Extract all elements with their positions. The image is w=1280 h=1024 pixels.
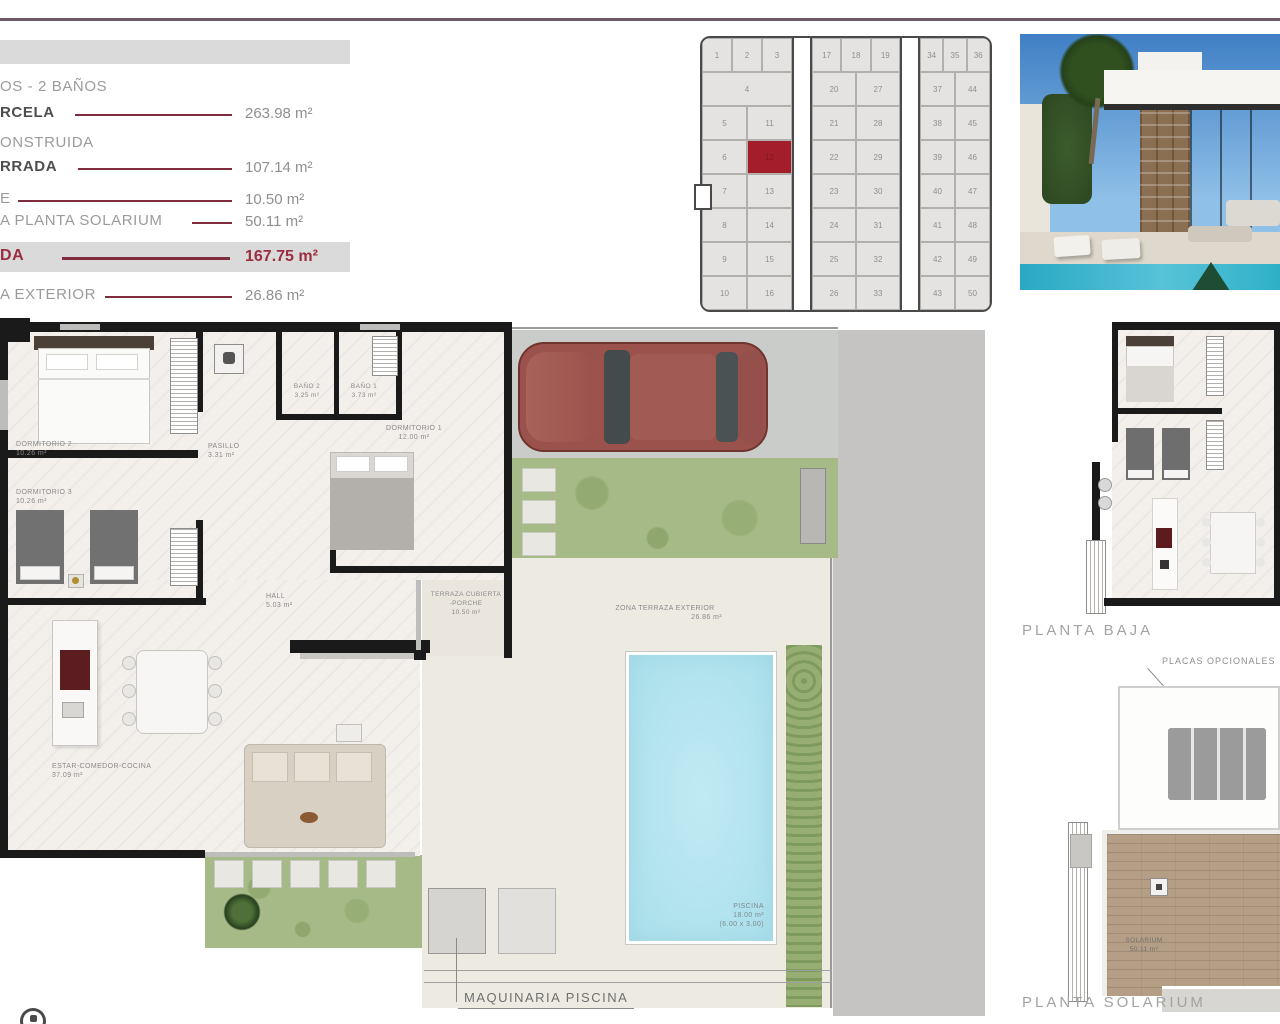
mini-chair: [1256, 518, 1265, 527]
lot-44: 44: [955, 72, 990, 106]
room-area: 18.00 m²: [660, 911, 764, 920]
lot-30: 30: [856, 174, 900, 208]
street-top-line: [510, 327, 838, 329]
info-value: 50.11 m²: [245, 213, 303, 230]
lot-47: 47: [955, 174, 990, 208]
lot-16: 16: [747, 276, 792, 310]
wall: [276, 330, 282, 414]
chair: [208, 684, 222, 698]
car-hood: [526, 352, 596, 442]
room-area: 37.09 m²: [52, 771, 151, 780]
lot-25: 25: [812, 242, 856, 276]
info-header: OS - 2 BAÑOS: [0, 78, 107, 95]
leader-line: [75, 114, 232, 116]
lot-5: 5: [702, 106, 747, 140]
info-label: A PLANTA SOLARIUM: [0, 212, 162, 229]
window: [60, 324, 100, 330]
pillow: [20, 566, 60, 580]
photo-table-set: [1188, 226, 1252, 242]
mini-bed: [1126, 336, 1174, 346]
info-value: 167.75 m²: [245, 248, 318, 266]
placas-label: PLACAS OPCIONALES: [1162, 656, 1276, 666]
stepping-stone: [290, 860, 320, 888]
room-name: TERRAZA CUBIERTA: [424, 590, 508, 599]
photo-pool: [1020, 264, 1280, 290]
lot-36: 36: [967, 38, 990, 72]
site-grid: 1234511612713814915101617181920272128222…: [700, 36, 992, 312]
room-name: PISCINA: [660, 902, 764, 911]
top-rule: [0, 18, 1280, 21]
sofa-cushion: [336, 752, 372, 782]
lot-43: 43: [920, 276, 955, 310]
lot-11: 11: [747, 106, 792, 140]
room-label-zona-terraza: ZONA TERRAZA EXTERIOR 26.86 m²: [600, 604, 730, 622]
info-value: 107.14 m²: [245, 159, 313, 176]
stepping-stone: [522, 468, 556, 492]
pillow: [46, 354, 88, 370]
room-label-pasillo: PASILLO 3.31 m²: [208, 442, 239, 460]
lot-1: 1: [702, 38, 732, 72]
leader-line: [18, 200, 232, 202]
lot-8: 8: [702, 208, 747, 242]
info-row-exterior: A EXTERIOR 26.86 m²: [0, 286, 350, 306]
wardrobe: [170, 528, 198, 586]
photo-sofa: [1226, 200, 1280, 226]
mini-pillow: [1164, 470, 1188, 478]
stone-pillar: [1140, 110, 1190, 234]
lot-2: 2: [732, 38, 762, 72]
solarium-vent-core: [1156, 884, 1162, 890]
wall: [330, 566, 506, 573]
room-name: DORMITORIO 2: [16, 440, 72, 449]
mini-blanket: [1126, 366, 1174, 402]
solarium-deck: [1102, 830, 1280, 996]
washer-drum: [223, 352, 235, 364]
info-row-parcela: RCELA 263.98 m²: [0, 104, 350, 124]
wall: [0, 850, 205, 858]
wall: [276, 414, 402, 420]
mini-pillow: [1128, 470, 1152, 478]
stepping-stone: [522, 532, 556, 556]
lot-42: 42: [920, 242, 955, 276]
chair: [208, 656, 222, 670]
boundary-line-right: [830, 558, 832, 1008]
pillow: [336, 456, 370, 472]
lot-3: 3: [762, 38, 792, 72]
hedge-strip: [786, 645, 822, 1007]
room-area: 50.11 m²: [1112, 945, 1176, 954]
villa-roof: [1104, 70, 1280, 104]
lot-22: 22: [812, 140, 856, 174]
room-label-porche: TERRAZA CUBIERTA -PORCHE 10.50 m²: [424, 590, 508, 617]
lot-18: 18: [841, 38, 870, 72]
mini-sink: [1160, 560, 1169, 569]
car: [518, 342, 768, 452]
sofa-cushion: [294, 752, 330, 782]
room-name: DORMITORIO 1: [378, 424, 450, 433]
leader-line: [105, 296, 232, 298]
wall-tv: [290, 640, 430, 653]
lot-27: 27: [856, 72, 900, 106]
wall: [1112, 322, 1280, 330]
chair: [122, 684, 136, 698]
lot-40: 40: [920, 174, 955, 208]
car-windshield: [604, 350, 630, 444]
wall: [1104, 598, 1280, 606]
lounger-icon: [1053, 235, 1090, 257]
site-road: [900, 38, 920, 310]
info-row-porche: E 10.50 m²: [0, 190, 350, 210]
room-label-piscina: PISCINA 18.00 m² (6.00 x 3.00): [660, 902, 764, 929]
solar-panels: [1168, 728, 1266, 800]
lot-13: 13: [747, 174, 792, 208]
mini-boiler: [1098, 478, 1112, 492]
info-top-bar: [0, 40, 350, 64]
lot-12: 12: [747, 140, 792, 174]
lot-35: 35: [943, 38, 966, 72]
lot-45: 45: [955, 106, 990, 140]
stepping-stone: [328, 860, 358, 888]
lot-46: 46: [955, 140, 990, 174]
terrace-bottom-line: [424, 970, 832, 971]
info-caption-construida: ONSTRUIDA: [0, 134, 94, 151]
room-label-estar: ESTAR-COMEDOR-COCINA 37.09 m²: [52, 762, 151, 780]
lot-49: 49: [955, 242, 990, 276]
logo-glyph: [30, 1015, 37, 1022]
lot-37: 37: [920, 72, 955, 106]
mini-stairs: [1086, 540, 1106, 614]
stepping-stone: [366, 860, 396, 888]
info-label: RCELA: [0, 104, 55, 121]
blanket: [330, 478, 414, 550]
coffee-table: [336, 724, 362, 742]
mini-chair: [1202, 518, 1211, 527]
info-panel: OS - 2 BAÑOS RCELA 263.98 m² ONSTRUIDA R…: [0, 30, 360, 310]
garden-strip-top: [510, 458, 838, 558]
maquinaria-leader: [456, 938, 457, 1002]
lot-41: 41: [920, 208, 955, 242]
car-rear-glass: [716, 352, 738, 442]
mini-chair: [1202, 538, 1211, 547]
lot-34: 34: [920, 38, 943, 72]
window: [360, 324, 400, 330]
terrace-bottom-line: [424, 982, 832, 983]
room-area: 26.86 m²: [600, 613, 730, 622]
mini-table: [1210, 512, 1256, 574]
lot-20: 20: [812, 72, 856, 106]
leader-line: [192, 222, 232, 224]
car-roof: [630, 354, 716, 440]
room-area: 10.50 m²: [424, 608, 508, 617]
lamp: [72, 577, 79, 584]
pool: [626, 652, 776, 944]
porch-door: [416, 580, 421, 650]
room-area: 3.31 m²: [208, 451, 239, 460]
lot-10: 10: [702, 276, 747, 310]
planta-solarium-label: PLANTA SOLARIUM: [1022, 994, 1206, 1011]
tv-shelf: [300, 653, 420, 659]
lot-15: 15: [747, 242, 792, 276]
lot-29: 29: [856, 140, 900, 174]
mini-wardrobe: [1206, 420, 1224, 470]
room-area: 12.00 m²: [378, 433, 450, 442]
window: [0, 380, 8, 430]
dining-table: [136, 650, 208, 734]
lot-33: 33: [856, 276, 900, 310]
room-label-hall: HALL 5.03 m²: [266, 592, 293, 610]
lounger-icon: [1102, 238, 1141, 260]
maquinaria-label: MAQUINARIA PISCINA: [458, 990, 634, 1009]
solarium-area-label: SOLARIUM 50.11 m²: [1112, 936, 1176, 954]
chair: [208, 712, 222, 726]
dog: [300, 812, 318, 823]
wall: [1112, 408, 1222, 414]
blanket-line: [38, 378, 150, 380]
info-row-solarium: A PLANTA SOLARIUM 50.11 m²: [0, 212, 350, 232]
lot-14: 14: [747, 208, 792, 242]
wall: [8, 598, 206, 605]
chair: [122, 712, 136, 726]
garden-gate: [800, 468, 826, 544]
info-label: DA: [0, 247, 24, 265]
room-area: 10.26 m²: [16, 497, 72, 506]
street-right: [833, 330, 985, 1016]
room-name: HALL: [266, 592, 293, 601]
pillow: [94, 566, 134, 580]
lot-38: 38: [920, 106, 955, 140]
stepping-stone: [522, 500, 556, 524]
lot-4: 4: [702, 72, 792, 106]
mini-chair: [1256, 538, 1265, 547]
lot-24: 24: [812, 208, 856, 242]
mini-planta-baja: [1062, 322, 1280, 614]
wall: [1274, 322, 1280, 606]
room-name: BAÑO 1: [340, 382, 388, 391]
planta-baja-label: PLANTA BAJA: [1022, 622, 1153, 639]
sofa-cushion: [252, 752, 288, 782]
mini-chair: [1256, 558, 1265, 567]
villa-roof-top-box: [1138, 52, 1202, 72]
lot-17: 17: [812, 38, 841, 72]
room-label-dormitorio1: DORMITORIO 1 12.00 m²: [378, 424, 450, 442]
lot-28: 28: [856, 106, 900, 140]
info-label: E: [0, 190, 11, 207]
garden-palm-icon: [222, 892, 262, 932]
solarium-landing: [1070, 834, 1092, 868]
info-value: 26.86 m²: [245, 287, 304, 304]
wall: [1112, 322, 1118, 442]
room-label-bano1: BAÑO 1 3.73 m²: [340, 382, 388, 400]
room-label-dormitorio2: DORMITORIO 2 10.26 m²: [16, 440, 72, 458]
stepping-stone: [214, 860, 244, 888]
room-name: ESTAR-COMEDOR-COCINA: [52, 762, 151, 771]
room-area: 10.26 m²: [16, 449, 72, 458]
wall: [334, 330, 339, 414]
mini-boiler: [1098, 496, 1112, 510]
mini-cooktop: [1156, 528, 1172, 548]
closet: [372, 336, 398, 376]
lot-32: 32: [856, 242, 900, 276]
room-dims: (6.00 x 3.00): [660, 920, 764, 929]
plan-sheet: OS - 2 BAÑOS RCELA 263.98 m² ONSTRUIDA R…: [0, 0, 1280, 1024]
room-name: -PORCHE: [424, 599, 508, 608]
chair: [122, 656, 136, 670]
info-value: 263.98 m²: [245, 105, 313, 122]
room-name: DORMITORIO 3: [16, 488, 72, 497]
villa-photo: [1020, 34, 1280, 290]
room-label-dormitorio3: DORMITORIO 3 10.26 m²: [16, 488, 72, 506]
pillow: [374, 456, 408, 472]
room-area: 3.25 m²: [284, 391, 330, 400]
lot-9: 9: [702, 242, 747, 276]
leader-line: [78, 168, 232, 170]
room-area: 3.73 m²: [340, 391, 388, 400]
pillow: [96, 354, 138, 370]
lot-48: 48: [955, 208, 990, 242]
stepping-stone: [252, 860, 282, 888]
maquinaria-box: [498, 888, 556, 954]
wardrobe: [170, 338, 198, 434]
lot-19: 19: [871, 38, 900, 72]
info-row-cerrada: RRADA 107.14 m²: [0, 158, 350, 178]
info-label: A EXTERIOR: [0, 286, 96, 303]
lot-39: 39: [920, 140, 955, 174]
room-area: 5.03 m²: [266, 601, 293, 610]
maquinaria-box: [428, 888, 486, 954]
lot-31: 31: [856, 208, 900, 242]
car-trunk: [738, 350, 764, 444]
site-road: [792, 38, 812, 310]
room-name: ZONA TERRAZA EXTERIOR: [600, 604, 730, 613]
lot-23: 23: [812, 174, 856, 208]
info-row-total: DA 167.75 m²: [0, 247, 350, 267]
info-label: RRADA: [0, 158, 57, 175]
leader-line: [62, 257, 230, 260]
mini-chair: [1202, 558, 1211, 567]
lot-50: 50: [955, 276, 990, 310]
mini-wardrobe: [1206, 336, 1224, 396]
sink: [62, 702, 84, 718]
room-label-bano2: BAÑO 2 3.25 m²: [284, 382, 330, 400]
room-name: BAÑO 2: [284, 382, 330, 391]
sliding-door: [205, 852, 415, 857]
site-grid-notch: [694, 184, 712, 210]
info-value: 10.50 m²: [245, 191, 304, 208]
lot-6: 6: [702, 140, 747, 174]
cooktop: [60, 650, 90, 690]
lot-26: 26: [812, 276, 856, 310]
room-name: SOLARIUM: [1112, 936, 1176, 945]
lot-21: 21: [812, 106, 856, 140]
room-name: PASILLO: [208, 442, 239, 451]
